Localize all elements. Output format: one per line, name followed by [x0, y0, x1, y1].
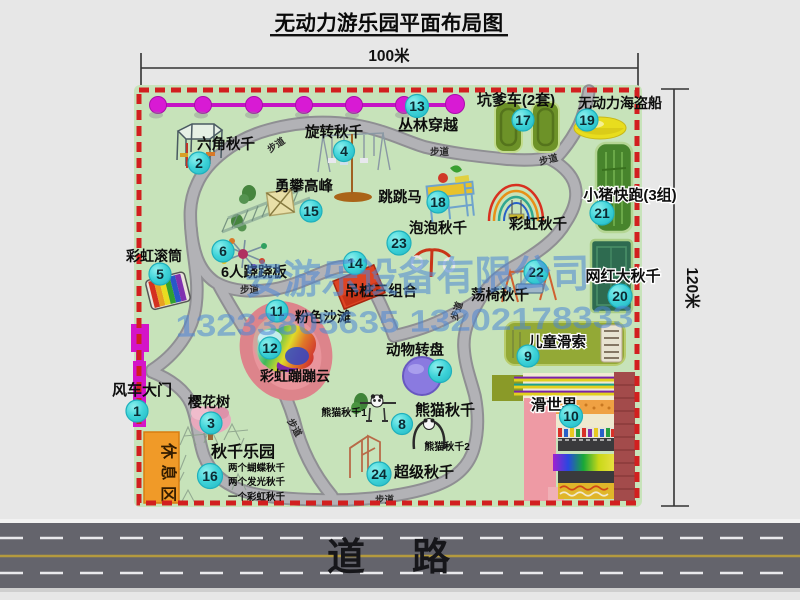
svg-text:风车大门: 风车大门	[112, 381, 172, 399]
svg-text:熊猫秋千: 熊猫秋千	[415, 401, 475, 419]
svg-text:六角秋千: 六角秋千	[197, 135, 255, 153]
svg-text:23: 23	[391, 235, 407, 251]
svg-text:18: 18	[430, 194, 446, 210]
svg-text:无动力海盗船: 无动力海盗船	[577, 95, 662, 111]
svg-text:10: 10	[563, 408, 579, 424]
svg-text:24: 24	[371, 466, 387, 482]
svg-text:动物转盘: 动物转盘	[386, 341, 444, 359]
svg-text:17: 17	[515, 112, 531, 128]
svg-text:15: 15	[303, 203, 319, 219]
svg-text:超级秋千: 超级秋千	[393, 463, 454, 481]
svg-text:1: 1	[133, 403, 141, 419]
svg-text:12: 12	[262, 340, 278, 356]
svg-text:熊猫秋千1: 熊猫秋千1	[321, 406, 367, 419]
svg-text:道: 道	[327, 537, 365, 579]
svg-text:网红大秋千: 网红大秋千	[585, 267, 660, 285]
svg-text:19: 19	[579, 112, 595, 128]
svg-text:跳跳马: 跳跳马	[378, 188, 422, 206]
svg-text:13: 13	[409, 98, 425, 114]
svg-text:无动力游乐园平面布局图: 无动力游乐园平面布局图	[275, 11, 504, 35]
svg-text:彩虹蹦蹦云: 彩虹蹦蹦云	[259, 368, 330, 384]
svg-text:6: 6	[219, 243, 227, 259]
svg-text:16: 16	[202, 468, 218, 484]
svg-text:2: 2	[195, 155, 203, 171]
svg-text:勇攀高峰: 勇攀高峰	[275, 177, 333, 195]
svg-text:安游乐设备有限公司: 安游乐设备有限公司	[244, 252, 590, 303]
svg-text:樱花树: 樱花树	[188, 394, 230, 410]
svg-text:4: 4	[340, 143, 348, 159]
svg-text:旋转秋千: 旋转秋千	[304, 123, 363, 141]
svg-text:彩虹滚筒: 彩虹滚筒	[125, 248, 182, 264]
svg-text:两个蝴蝶秋千: 两个蝴蝶秋千	[228, 462, 286, 474]
svg-text:7: 7	[436, 363, 444, 379]
svg-text:8: 8	[398, 416, 406, 432]
svg-text:坑爹车(2套): 坑爹车(2套)	[477, 91, 555, 109]
svg-text:一个彩虹秋千: 一个彩虹秋千	[228, 491, 286, 503]
svg-text:两个发光秋千: 两个发光秋千	[228, 476, 286, 488]
svg-text:彩虹秋千: 彩虹秋千	[508, 215, 567, 233]
svg-text:泡泡秋千: 泡泡秋千	[409, 219, 467, 237]
svg-text:休息区: 休息区	[159, 442, 178, 508]
svg-text:120米: 120米	[683, 267, 702, 309]
svg-text:21: 21	[594, 205, 610, 221]
svg-text:3: 3	[207, 415, 215, 431]
svg-text:100米: 100米	[368, 46, 410, 65]
svg-text:丛林穿越: 丛林穿越	[398, 116, 459, 134]
svg-text:熊猫秋千2: 熊猫秋千2	[424, 440, 470, 453]
svg-text:步道: 步道	[430, 146, 450, 158]
svg-text:路: 路	[412, 537, 451, 579]
svg-text:9: 9	[524, 348, 532, 364]
svg-text:5: 5	[156, 266, 164, 282]
svg-text:秋千乐园: 秋千乐园	[211, 442, 275, 461]
